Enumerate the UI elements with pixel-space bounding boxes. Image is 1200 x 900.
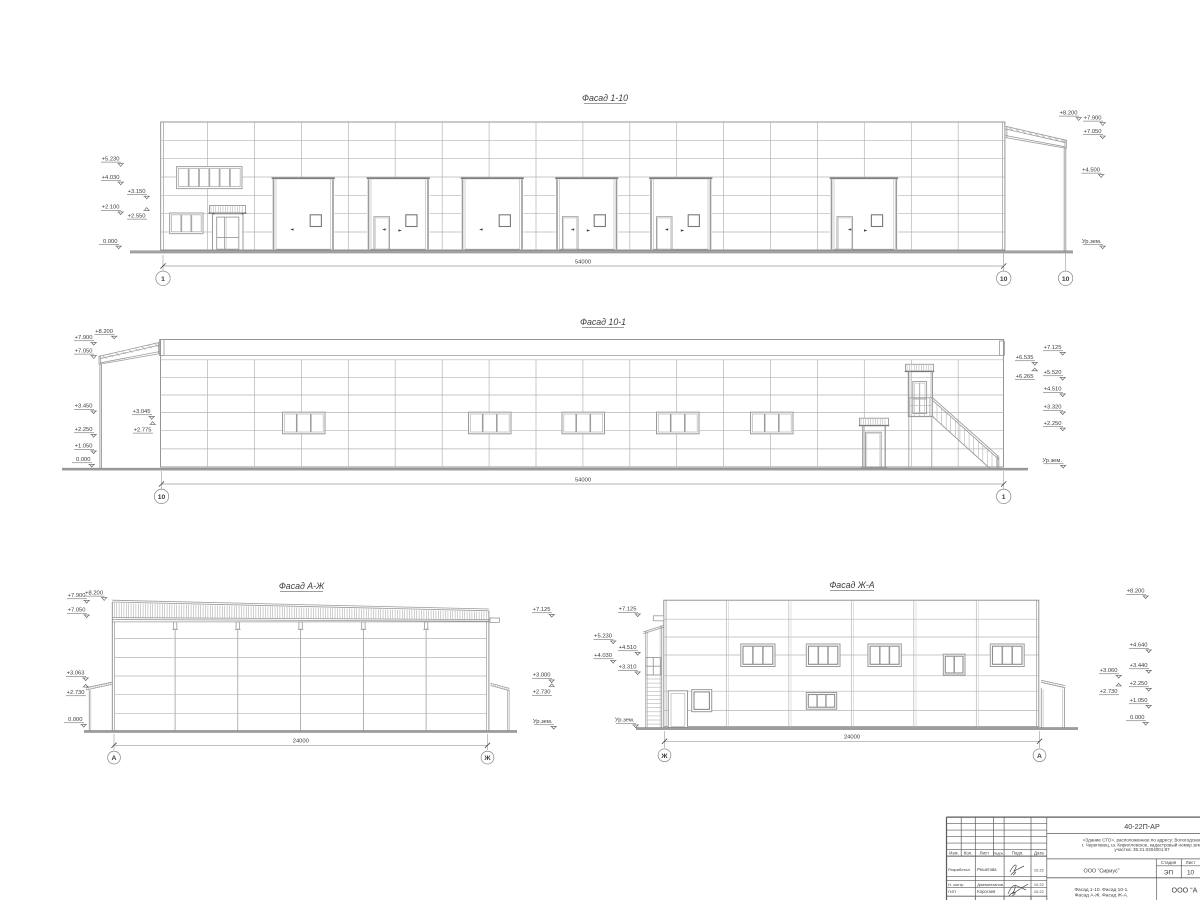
svg-text:Ур.зем.: Ур.зем. [533,719,553,725]
svg-text:+3.063: +3.063 [67,671,85,677]
svg-text:+2.250: +2.250 [75,427,93,433]
svg-text:Фасад 1-10: Фасад 1-10 [582,93,628,103]
svg-text:Ур.зем.: Ур.зем. [1042,458,1062,464]
svg-text:+4.500: +4.500 [1082,168,1100,174]
svg-text:+8.200: +8.200 [1127,589,1145,595]
svg-text:Фасад А-Ж: Фасад А-Ж [279,581,325,591]
svg-text:+2.730: +2.730 [67,690,85,696]
svg-text:54000: 54000 [575,259,591,265]
svg-text:Стадия: Стадия [1161,860,1177,865]
svg-text:10: 10 [158,494,166,501]
svg-text:+4.510: +4.510 [619,645,637,651]
svg-text:+8.200: +8.200 [95,329,113,335]
svg-text:+3.045: +3.045 [133,409,151,415]
svg-text:А: А [1037,753,1042,760]
svg-text:Разработал: Разработал [948,867,970,872]
svg-text:+4.030: +4.030 [594,653,612,659]
svg-text:24000: 24000 [844,735,860,741]
svg-text:+6.265: +6.265 [1016,374,1034,380]
svg-text:0.000: 0.000 [1130,715,1145,721]
svg-text:10.22: 10.22 [1034,868,1044,873]
svg-text:Ж: Ж [483,755,491,762]
svg-text:+3.310: +3.310 [619,665,637,671]
svg-text:+5.520: +5.520 [1044,370,1062,376]
svg-text:Лист: Лист [980,850,990,855]
svg-text:54000: 54000 [575,477,591,483]
svg-text:Джемилханов: Джемилханов [977,882,1003,887]
svg-text:+6.535: +6.535 [1016,355,1034,361]
svg-text:+2.775: +2.775 [134,428,152,434]
svg-text:+7.050: +7.050 [68,608,86,614]
svg-text:10: 10 [1187,870,1195,877]
svg-text:Дата: Дата [1034,850,1044,855]
svg-text:Фасад 10-1: Фасад 10-1 [580,317,626,327]
svg-text:40-22П-АР: 40-22П-АР [1124,822,1160,831]
svg-text:+7.900: +7.900 [1084,116,1102,122]
svg-text:10: 10 [1062,276,1070,283]
svg-text:+4.510: +4.510 [1044,387,1062,393]
svg-text:+4.030: +4.030 [102,175,120,181]
svg-text:Ур.зем.: Ур.зем. [615,718,635,724]
svg-text:А: А [112,755,117,762]
svg-text:+1.050: +1.050 [75,444,93,450]
svg-text:+8.200: +8.200 [1060,111,1078,117]
svg-text:Коротаев: Коротаев [977,889,996,894]
svg-text:Лист: Лист [1186,860,1196,865]
svg-text:+3.000: +3.000 [533,673,551,679]
svg-text:+7.900: +7.900 [75,335,93,341]
svg-text:Ж: Ж [660,753,668,760]
svg-text:0.000: 0.000 [103,239,118,245]
svg-text:+3.320: +3.320 [1044,405,1062,411]
svg-text:+2.250: +2.250 [1044,421,1062,427]
svg-text:участка: 35:21.0304001:87: участка: 35:21.0304001:87 [1114,847,1170,852]
svg-text:Фасад А-Ж. Фасад Ж-А.: Фасад А-Ж. Фасад Ж-А. [1075,893,1128,899]
svg-text:+5.230: +5.230 [594,634,612,640]
svg-text:0.000: 0.000 [68,717,83,723]
svg-text:+3.440: +3.440 [1130,663,1148,669]
svg-text:1: 1 [161,276,165,283]
svg-text:0.000: 0.000 [76,457,91,463]
svg-text:10: 10 [1000,276,1008,283]
svg-text:10.22: 10.22 [1034,882,1044,887]
svg-text:ЭП: ЭП [1164,870,1174,877]
svg-text:+7.125: +7.125 [1044,345,1062,351]
svg-text:Фасад Ж-А: Фасад Ж-А [829,580,874,590]
svg-text:+7.900: +7.900 [68,593,86,599]
svg-text:№док.: №док. [994,852,1005,856]
svg-text:+7.050: +7.050 [75,349,93,355]
svg-text:ГИП: ГИП [948,889,956,894]
svg-text:+1.050: +1.050 [1130,698,1148,704]
svg-text:+2.250: +2.250 [1130,681,1148,687]
svg-text:ООО “Сириус”: ООО “Сириус” [1084,868,1120,874]
svg-text:+8.200: +8.200 [85,591,103,597]
svg-text:+4.640: +4.640 [1130,643,1148,649]
svg-text:+7.125: +7.125 [533,607,551,613]
svg-text:+7.050: +7.050 [1084,129,1102,135]
svg-text:+2.730: +2.730 [1100,689,1118,695]
svg-text:Решетова: Решетова [977,867,997,872]
svg-text:+7.125: +7.125 [619,607,637,613]
svg-text:+3.060: +3.060 [1100,668,1118,674]
svg-text:ООО “А: ООО “А [1172,886,1198,895]
svg-text:+3.450: +3.450 [75,404,93,410]
svg-text:24000: 24000 [293,739,309,745]
svg-text:Подп.: Подп. [1012,850,1024,855]
svg-text:Изм.: Изм. [949,850,958,855]
svg-text:+2.550: +2.550 [128,214,146,220]
svg-text:+2.730: +2.730 [533,690,551,696]
svg-text:Н. контр.: Н. контр. [948,882,965,887]
svg-text:1: 1 [1002,494,1006,501]
svg-text:+5.230: +5.230 [102,157,120,163]
svg-text:Кол.: Кол. [964,850,973,855]
svg-text:Фасад 1-10. Фасад 10-1.: Фасад 1-10. Фасад 10-1. [1074,887,1128,893]
svg-text:Ур.зем.: Ур.зем. [1082,239,1102,245]
svg-text:10.22: 10.22 [1034,889,1044,894]
svg-text:+3.150: +3.150 [128,189,146,195]
svg-text:+2.100: +2.100 [102,205,120,211]
